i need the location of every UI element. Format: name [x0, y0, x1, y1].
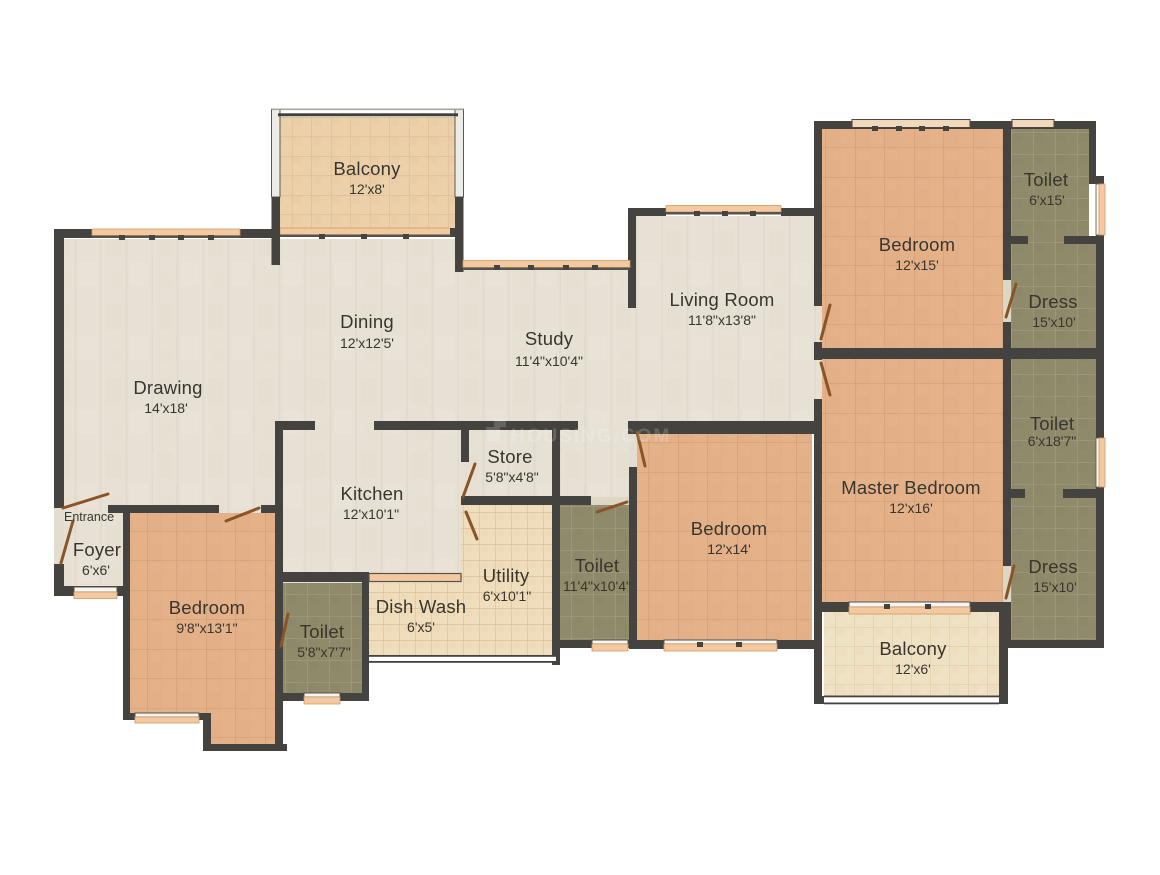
svg-text:Master Bedroom: Master Bedroom — [841, 477, 981, 498]
svg-text:6'x10'1": 6'x10'1" — [483, 588, 531, 604]
svg-text:Bedroom: Bedroom — [879, 234, 955, 255]
svg-text:Foyer: Foyer — [73, 539, 121, 560]
svg-text:12'x12'5': 12'x12'5' — [340, 335, 394, 351]
svg-text:6'x15': 6'x15' — [1029, 192, 1065, 208]
svg-text:5'8"x7'7": 5'8"x7'7" — [297, 644, 350, 660]
svg-text:Toilet: Toilet — [300, 621, 344, 642]
svg-text:12'x8': 12'x8' — [349, 181, 385, 197]
svg-text:Toilet: Toilet — [1024, 169, 1068, 190]
svg-text:Study: Study — [525, 328, 574, 349]
svg-text:Drawing: Drawing — [133, 377, 202, 398]
svg-text:6'x6': 6'x6' — [82, 562, 110, 578]
svg-text:15'x10': 15'x10' — [1033, 579, 1077, 595]
svg-text:12'x10'1": 12'x10'1" — [343, 506, 399, 522]
svg-text:12'x15': 12'x15' — [895, 257, 939, 273]
svg-text:Dining: Dining — [340, 311, 394, 332]
svg-text:Toilet: Toilet — [575, 555, 619, 576]
svg-text:15'x10': 15'x10' — [1032, 314, 1076, 330]
svg-text:Toilet: Toilet — [1030, 413, 1074, 434]
svg-text:Bedroom: Bedroom — [169, 597, 245, 618]
svg-text:Balcony: Balcony — [333, 158, 401, 179]
svg-text:Entrance: Entrance — [64, 510, 114, 524]
svg-text:Dress: Dress — [1028, 556, 1077, 577]
svg-text:Balcony: Balcony — [879, 638, 947, 659]
svg-text:11'4"x10'4": 11'4"x10'4" — [563, 578, 631, 594]
svg-text:14'x18': 14'x18' — [144, 400, 188, 416]
svg-text:Kitchen: Kitchen — [340, 483, 403, 504]
svg-text:Dress: Dress — [1028, 291, 1077, 312]
svg-text:6'x18'7": 6'x18'7" — [1028, 433, 1076, 449]
svg-text:12'x6': 12'x6' — [895, 661, 931, 677]
svg-text:Bedroom: Bedroom — [691, 518, 767, 539]
svg-text:Living Room: Living Room — [669, 289, 774, 310]
svg-text:HOUSING.COM: HOUSING.COM — [511, 426, 671, 447]
svg-text:12'x16': 12'x16' — [889, 500, 933, 516]
svg-text:11'8"x13'8": 11'8"x13'8" — [688, 312, 756, 328]
svg-text:5'8"x4'8": 5'8"x4'8" — [485, 469, 538, 485]
svg-text:9'8"x13'1": 9'8"x13'1" — [176, 620, 237, 636]
svg-text:Store: Store — [487, 446, 532, 467]
svg-text:Dish Wash: Dish Wash — [376, 596, 467, 617]
svg-text:11'4"x10'4": 11'4"x10'4" — [515, 353, 583, 369]
svg-text:12'x14': 12'x14' — [707, 541, 751, 557]
svg-text:6'x5': 6'x5' — [407, 619, 435, 635]
svg-text:Utility: Utility — [483, 565, 530, 586]
